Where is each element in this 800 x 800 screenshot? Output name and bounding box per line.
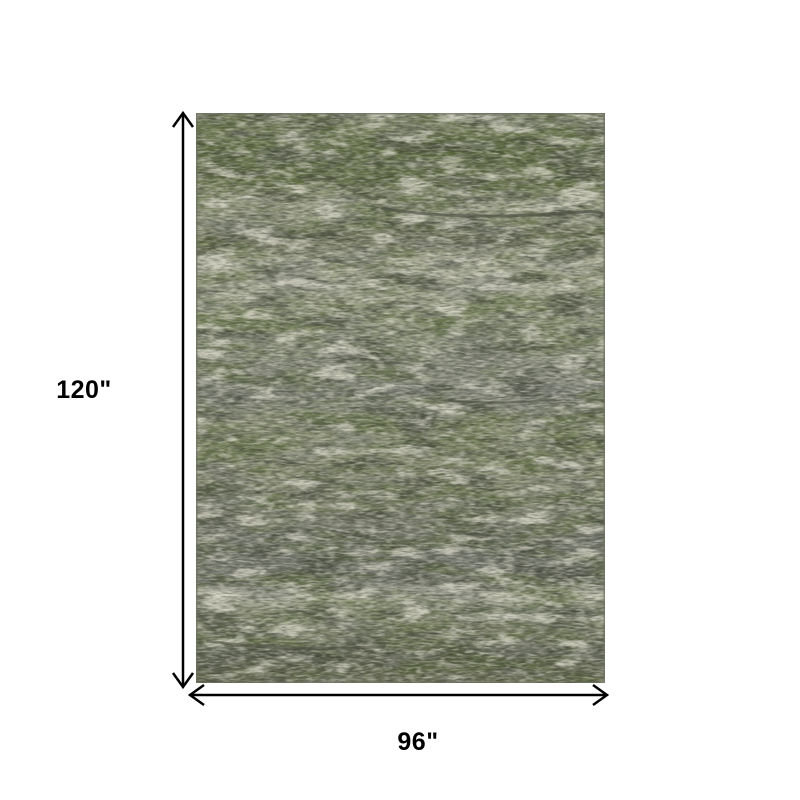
horizontal-dimension-arrow <box>190 685 607 705</box>
arrowhead-down-icon <box>173 673 193 687</box>
rug-texture <box>196 113 605 683</box>
product-dimension-diagram: 120" 96" <box>0 0 800 800</box>
rug-image <box>196 113 605 683</box>
height-dimension-label: 120" <box>34 376 134 405</box>
arrowhead-right-icon <box>593 685 607 705</box>
vertical-dimension-arrow <box>173 113 193 687</box>
arrowhead-left-icon <box>190 685 204 705</box>
width-dimension-label: 96" <box>368 728 468 757</box>
arrowhead-up-icon <box>173 113 193 127</box>
